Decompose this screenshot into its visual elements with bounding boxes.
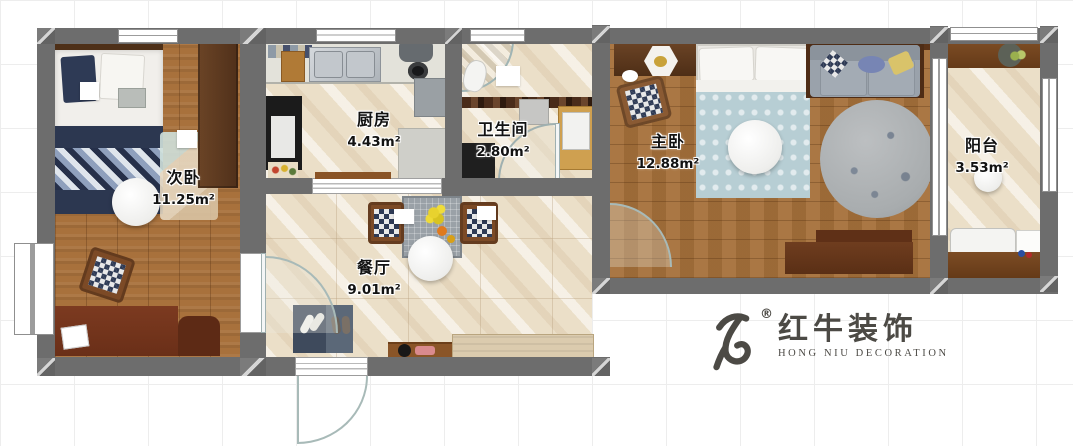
room-name: 阳台 [936,132,1028,156]
bed-tray [118,88,146,108]
desk-papers [61,324,90,349]
pillow-white [754,46,810,83]
entrance-door-arc [297,376,368,444]
room-label-secondary-bedroom: 次卧 11.25m² [136,164,231,208]
detergent [1018,250,1025,257]
wall-corner-cap [1040,27,1058,43]
place-setting-left [394,209,414,224]
room-area: 12.88m² [618,156,718,172]
wall-corner-cap [930,278,948,294]
registered-trademark: ® [760,307,773,322]
kitchen-sliding-door [312,178,442,194]
plant-leaves [1010,50,1026,62]
wall-corner-cap [37,358,55,376]
room-area: 4.43m² [328,134,420,150]
wall-corner-cap [240,358,266,376]
cutting-board [281,51,305,82]
detergent [1026,252,1032,258]
wall-bathroom-bottom [442,178,592,196]
room-label-kitchen: 厨房 4.43m² [328,106,420,150]
wall-kitchen-bottom [250,178,312,194]
room-label-balcony: 阳台 3.53m² [936,132,1028,176]
note-marker [496,66,520,86]
balcony-shelf [948,42,1040,68]
ceiling-light [728,120,782,174]
note-marker [80,82,99,100]
entrance-door-jamb [295,357,368,376]
wall-master-bottom [592,278,1058,294]
wall-top [37,28,1058,44]
fruit [447,235,455,243]
room-label-master-bedroom: 主卧 12.88m² [618,128,718,172]
desk-chair [178,316,220,356]
sink-basin-left [314,51,343,78]
bed-blanket-navy [55,126,163,148]
window [118,29,178,43]
toy-car [415,346,435,355]
bay-window [14,243,54,335]
small-plant [268,162,298,178]
room-name: 厨房 [328,106,420,130]
place-setting-right [477,206,496,220]
wall-corner-cap [1040,276,1058,292]
wall-master-left [592,25,610,278]
pillow-white [698,46,754,83]
kitchen-threshold [315,172,391,179]
wall-corner-cap [930,27,948,43]
wall-corner-cap [592,358,610,376]
flower-vase [424,202,448,226]
window [1042,78,1057,192]
wall-corner-cap [37,28,55,44]
sink-basin-right [346,51,375,78]
slipper [341,316,350,335]
fruit [437,226,447,236]
room-area: 11.25m² [136,192,231,208]
bed-sheet-fold [696,80,810,92]
window [316,29,396,42]
window [470,29,525,42]
wall-corner-cap [592,26,610,43]
oven-door [271,116,295,158]
hongniu-bull-logo-icon [712,311,766,371]
company-logo: ® 红牛装饰 HONG NIU DECORATION [712,303,962,375]
floor-plan: 次卧 11.25m² 厨房 4.43m² 卫生间 2.80m² 主卧 12.88… [0,0,1073,446]
brand-name-cn: 红牛装饰 [778,315,949,345]
brand-name-en: HONG NIU DECORATION [778,348,949,359]
hat [398,344,411,357]
wall-corner-cap [240,28,266,44]
room-name: 主卧 [618,128,718,152]
round-rug [820,100,934,218]
throw-pillow-blue [858,56,885,73]
room-name: 餐厅 [328,254,420,278]
room-label-dining-room: 餐厅 9.01m² [328,254,420,298]
room-area: 2.80m² [448,144,558,160]
tv-cabinet [785,242,913,274]
note-marker [177,130,197,148]
window [950,27,1038,41]
room-label-bathroom: 卫生间 2.80m² [448,116,558,160]
room-area: 3.53m² [936,160,1028,176]
wall-corner-cap [445,28,462,44]
table-decor [654,56,667,67]
room-area: 9.01m² [328,282,420,298]
vanity-sink [562,112,590,150]
room-name: 次卧 [136,164,231,188]
range-hood [399,42,433,62]
room-name: 卫生间 [448,116,558,140]
wall-corner-cap [592,278,610,294]
